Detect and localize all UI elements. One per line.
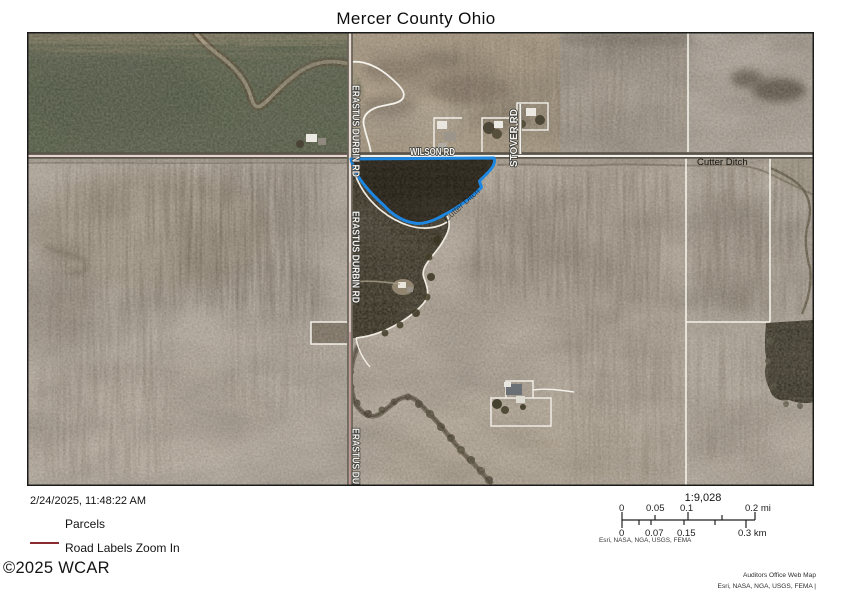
svg-text:ERASTUS DURBIN RD: ERASTUS DURBIN RD	[350, 211, 361, 303]
svg-text:0.2 mi: 0.2 mi	[745, 503, 771, 514]
svg-text:ERASTUS DURBIN RD: ERASTUS DURBIN RD	[350, 428, 361, 486]
svg-text:0.05: 0.05	[646, 503, 665, 514]
svg-text:STOVER RD: STOVER RD	[509, 109, 520, 167]
svg-text:WILSON RD: WILSON RD	[410, 147, 455, 158]
svg-text:ERASTUS DURBIN RD: ERASTUS DURBIN RD	[350, 85, 361, 177]
svg-text:0.3 km: 0.3 km	[738, 528, 767, 539]
svg-text:Cutter Ditch: Cutter Ditch	[697, 157, 748, 168]
svg-text:0.1: 0.1	[680, 503, 693, 514]
